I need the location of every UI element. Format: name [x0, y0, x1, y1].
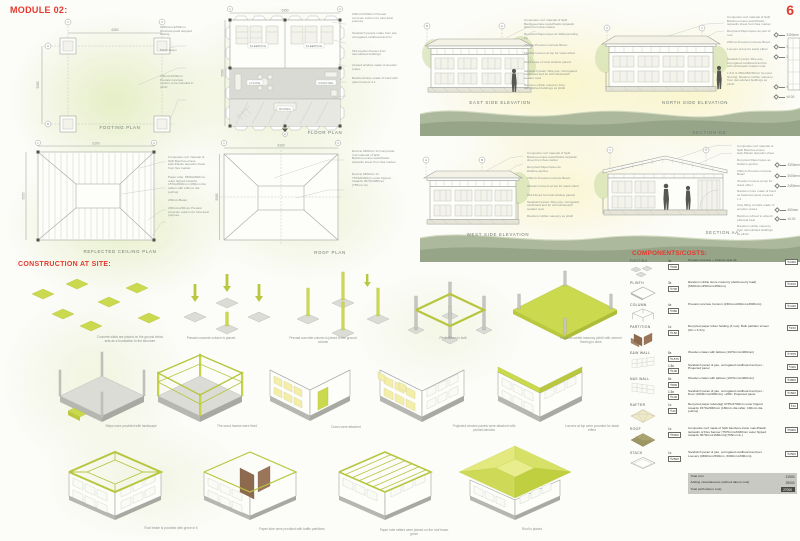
component-footing: FOOTING 4x₹600 Precast concrete + Column… — [630, 259, 798, 278]
section-marker: A — [282, 129, 288, 137]
total-price: ₹1500 — [785, 390, 798, 396]
qty: 1x — [668, 427, 671, 431]
floor-plan-drawing: 6350 5080 — [222, 6, 347, 136]
total-price: ₹4800 — [785, 377, 798, 383]
unit-price: ₹1575 — [668, 356, 681, 362]
rcp-dim-width: 6100 — [92, 142, 99, 146]
qty: 1.5x — [668, 364, 674, 368]
roof-profile — [424, 171, 522, 178]
section-aa-drawing: 1 2 — [598, 140, 733, 232]
step-6-drawing — [52, 352, 152, 424]
column-frame-icon — [630, 308, 656, 322]
presentation-sheet: MODULE 02: 6 6350 5080 1 2 A B 1200mmx12… — [0, 0, 800, 541]
footing-dim-height: 5080 — [36, 81, 40, 88]
step-caption: Paper tube rafters were placed on the ro… — [376, 528, 452, 536]
plinth — [606, 87, 716, 92]
foundation-pads — [32, 279, 160, 331]
callout-text: Louvers at top for stack effect — [727, 48, 773, 52]
level-marker: ±0.00 — [775, 217, 795, 221]
step-3-drawing — [288, 272, 398, 336]
step-caption: Louvers at top were provided for stack e… — [562, 424, 622, 432]
rcp-callouts: Composite roof material of Split Bamboo+… — [168, 156, 210, 221]
unit-price: ₹360 — [668, 308, 679, 314]
unit-price: ₹150 — [668, 330, 679, 336]
step-caption: Roof is placed — [512, 527, 552, 531]
svg-text:SLEEPING: SLEEPING — [250, 44, 266, 48]
total-price: ₹1440 — [785, 303, 798, 309]
total-price: ₹300 — [787, 364, 798, 370]
callout-text: Roof at 3300mm lvl 7570x6330mm outer hip… — [352, 173, 396, 188]
floor-plan-callouts: 230mmX230mm Precast concrete column for … — [352, 13, 398, 88]
step-caption: Doors were attached — [322, 425, 370, 429]
svg-text:SLEEPING: SLEEPING — [306, 44, 322, 48]
callout-text: Sandwich panels made from jute corrugate… — [352, 32, 398, 39]
callout-text: Wooden louvers at top for stack effect — [527, 185, 581, 189]
level-marker: 3300mm — [775, 163, 800, 167]
callout-text: Composite roof material of Split Bamboo+… — [737, 145, 777, 156]
west-elevation-drawing: A B — [422, 152, 524, 234]
level-marker: 2450mm — [775, 184, 800, 188]
callout-text: Old frames or local window panels — [524, 61, 580, 65]
step-13-drawing — [325, 440, 445, 524]
grid-bubble: 2 — [151, 140, 156, 145]
grid-bubble: 1 — [35, 140, 40, 145]
section-aa-callouts: Composite roof material of Split Bamboo+… — [737, 145, 777, 239]
unit-price: ₹100 — [668, 394, 679, 400]
step-caption: Roof beam is provided with grove in it — [140, 526, 202, 530]
callout-text: Paper tube: 5830x2840mm outer hipped tow… — [168, 176, 210, 195]
component-part-label: FOOTING — [630, 259, 668, 263]
north-elevation-label: NORTH SIDE ELEVATION — [640, 100, 750, 105]
grid-bubble: B — [479, 157, 485, 172]
roof-plan-drawing: 6330 5080 1 2 — [218, 140, 346, 252]
step-11-drawing — [55, 440, 175, 524]
grid-bubble: A — [499, 23, 505, 39]
callout-text: Composite roof material of Split Bamboo+… — [168, 156, 210, 171]
component-part-label: ROOF — [630, 427, 668, 431]
grid-bubble: 1 — [65, 19, 71, 25]
component-column: COLUMN 4x₹360 Precast concrete Column (2… — [630, 303, 798, 322]
qty: 5x — [668, 351, 671, 355]
svg-text:COOKING: COOKING — [318, 81, 333, 85]
component-ew-wall: E&W WALL 5x₹1575 Wooden crates with latt… — [630, 351, 798, 374]
plinth — [427, 220, 519, 225]
callout-text: Random rubble masonry as plinth — [527, 215, 581, 219]
component-plinth: PLINTH 3x₹700 Random rubble stone masonr… — [630, 281, 798, 300]
svg-text:A: A — [501, 24, 503, 28]
grid-bubble: B — [45, 121, 51, 127]
qty: 1x — [668, 403, 671, 407]
callout-text: Recycled Paperropes as Rafters+purlins — [527, 166, 581, 173]
roof-section — [603, 156, 727, 173]
unit-price: ₹5000 — [668, 432, 681, 438]
svg-text:DINING: DINING — [279, 107, 291, 111]
callout-text: Sandwich panel: Rice jute, corrugated ca… — [527, 201, 581, 212]
north-elevation-callouts: Composite roof material of Split Bamboo+… — [727, 16, 773, 90]
step-1-drawing — [25, 274, 165, 336]
roof-dim-width: 6330 — [277, 144, 284, 148]
step-2-drawing — [175, 272, 275, 336]
callout-text: Composite roof material of Split Bamboo+… — [727, 16, 773, 27]
east-elevation-drawing: B A — [422, 18, 537, 102]
qty: 1.5x — [668, 390, 674, 394]
component-part-label: COLUMN — [630, 303, 668, 307]
callout-text: Sandwich panel: Rice jute, corrugated ca… — [727, 58, 773, 69]
room-label: SLEEPING — [304, 43, 324, 48]
step-caption: Plinth Beam is built — [430, 336, 476, 340]
callout-text: Wooden louvers at top for stack effect — [737, 180, 777, 187]
callout-text: Clay filling of walls made of wooden cra… — [737, 204, 777, 211]
level-marker: 3000mm — [775, 174, 800, 178]
north-elevation-drawing: 2 1 — [598, 20, 726, 102]
callout-text: Old wooden frames from demolished buildi… — [352, 50, 398, 57]
callout-text: Recycled Paperropes as part of roof — [727, 30, 773, 37]
component-desc: Composite roof made of Split bamboo+Cane… — [688, 427, 772, 438]
callout-text: Roof at 3300mm lvl Composite roof materi… — [352, 150, 396, 165]
rcp-label: REFLECTED CEILING PLAN — [60, 249, 180, 254]
qty: 4x — [668, 259, 671, 263]
room-label: COOKING — [316, 80, 336, 85]
callout-text: 230mm Precast concrete Beam — [524, 44, 580, 48]
total-row: Total (with labour cost) 27000 — [691, 487, 795, 492]
qty: 1x — [668, 325, 671, 329]
floor-plan-label: FLOOR PLAN — [290, 130, 360, 135]
component-rafter: RAFTER 1x₹40 Recycled paper tubes(kg) 67… — [630, 403, 798, 424]
component-desc: Wooden crates with lattices (1970mmx1900… — [688, 377, 772, 381]
step-5-drawing — [505, 270, 625, 340]
component-part-label: N&S WALL — [630, 377, 668, 381]
room-label: SLEEPING — [248, 43, 268, 48]
footing-plan-callouts: 1200mmx1200mm Concrete pads stepped foot… — [160, 26, 194, 93]
component-desc: Sandwich panel of jute, corrugated cardb… — [688, 451, 772, 458]
step-caption: Precast concrete column is joined to the… — [288, 336, 358, 344]
page-number: 6 — [786, 2, 794, 18]
total-price: ₹150 — [787, 325, 798, 331]
callout-text: Flexible louvers at top for stack effect — [524, 52, 580, 56]
total-label: Total (with labour cost) — [691, 488, 781, 492]
step-7-drawing — [150, 352, 250, 424]
grid-bubble: A — [423, 157, 429, 178]
step-9-drawing — [372, 350, 472, 424]
roof-mat-icon — [630, 432, 656, 448]
level-marker: 450mm — [775, 208, 798, 212]
room-label: DINING — [277, 106, 293, 111]
svg-text:B: B — [481, 158, 483, 162]
callout-text: 1200mmx1200mm Concrete pads stepped foot… — [160, 26, 194, 37]
wall-crate-icon — [630, 356, 656, 370]
grid-bubble: A — [45, 43, 51, 49]
page-title: MODULE 02: — [10, 5, 68, 15]
floor-dim-height: 5080 — [221, 69, 225, 76]
unit-price: ₹700 — [668, 286, 679, 292]
section-aa-label: SECTION AA' — [688, 230, 758, 235]
total-price: ₹2100 — [785, 281, 798, 287]
callout-text: 230mm Precast concrete Beam — [527, 177, 581, 181]
callout-text: Bamboo/Cane made of Card with panel louv… — [352, 77, 398, 84]
step-4-drawing — [402, 270, 502, 340]
total-label: Adding miscellaneous (without labour cos… — [691, 481, 786, 485]
callout-text: 230mm Precast concrete Beam — [737, 170, 777, 177]
component-ns-wall: N&S WALL 6x₹800 Wooden crates with latti… — [630, 377, 798, 400]
step-12-drawing — [190, 440, 310, 524]
west-elevation-label: WEST SIDE ELEVATION — [448, 232, 548, 237]
component-part-label: RAFTER — [630, 403, 668, 407]
section-bb-edge-sliver — [787, 34, 800, 96]
construction-heading: CONSTRUCTION AT SITE: — [18, 261, 111, 268]
component-stack: STACK 1x₹2500 Sandwich panel of jute, co… — [630, 451, 798, 470]
unit-price: ₹40 — [668, 408, 677, 414]
grid-bubble: 2 — [335, 140, 340, 145]
rcp-dim-height: 5050 — [22, 192, 26, 199]
svg-text:B: B — [426, 24, 428, 28]
partition-screen-icon — [630, 330, 656, 348]
component-desc: Sandwich panel of jute, corrugated cardb… — [688, 364, 772, 371]
component-partition: PARTITION 1x₹150 Recycled paper tubes ho… — [630, 325, 798, 348]
svg-text:B: B — [47, 122, 49, 126]
svg-text:A: A — [47, 44, 49, 48]
step-caption: Concrete slabs are placed on the ground … — [96, 335, 164, 343]
roof-profile — [425, 39, 533, 46]
component-part-label: STACK — [630, 451, 668, 455]
callout-text: Old frames for local window panels — [527, 194, 581, 198]
unit-price: ₹100 — [668, 368, 679, 374]
total-value: 21900 — [786, 475, 795, 479]
step-caption: Paper tube were provided with baffle par… — [256, 527, 328, 531]
cost-totals: Total cost 21900 Adding miscellaneous (w… — [688, 473, 797, 494]
step-8-drawing — [262, 350, 357, 424]
rafter-frame-icon — [630, 408, 656, 424]
component-part-label: PARTITION — [630, 325, 668, 329]
callout-text: Composite roof material of Split Bamboo+… — [524, 19, 580, 30]
callout-text: Random rubble masonry from demolished bu… — [524, 84, 580, 91]
step-14-drawing — [450, 440, 580, 526]
grand-total-value: 27000 — [781, 487, 795, 492]
callout-text: pivoted window made of wooden crates — [352, 64, 398, 71]
callout-text: Composite roof material of Split Bamboo+… — [527, 152, 581, 163]
roof-plan-label: ROOF PLAN — [295, 250, 365, 255]
callout-text: Plinth Beam — [160, 49, 194, 53]
component-desc: Recycled paper tubes holding (3 nos); Bu… — [688, 325, 772, 332]
component-desc: Precast concrete + Column upto GL — [688, 259, 772, 263]
svg-text:LIVING: LIVING — [250, 81, 261, 85]
qty: 6x — [668, 377, 671, 381]
roof-profile — [602, 36, 720, 44]
callout-text: Sandwich panel: Rice jute, Corrugated ca… — [524, 70, 580, 81]
step-caption: Steps were provided with landscape — [98, 424, 164, 428]
component-desc: Precast concrete Column (230mmx200mmx300… — [688, 303, 772, 307]
plinth-slab-icon — [630, 286, 656, 300]
qty: 1x — [668, 451, 671, 455]
callout-text: 230mmX230mm Precast concrete column for … — [352, 13, 398, 24]
east-elevation-callouts: Composite roof material of Split Bamboo+… — [524, 19, 580, 94]
east-elevation-label: EAST SIDE ELEVATION — [450, 100, 550, 105]
step-caption: Random rubble masonry plinth with cement… — [560, 336, 622, 344]
callout-text: Recycled Paperropes as Waterproofing ply — [524, 33, 580, 40]
callout-text: Recycled Paperropes as Rafters+purlins — [737, 159, 777, 166]
total-value: 25000 — [786, 481, 795, 485]
svg-text:A: A — [425, 158, 427, 162]
callout-text: Random Core made of Card as backrest pan… — [737, 190, 777, 201]
room-label: LIVING — [247, 80, 263, 85]
step-caption: The wood frames were fixed — [208, 424, 266, 428]
total-price: ₹5000 — [785, 427, 798, 433]
callout-text: 230mm Precast concrete Beam — [727, 41, 773, 45]
unit-price: ₹2500 — [668, 456, 681, 462]
total-row: Adding miscellaneous (without labour cos… — [691, 481, 795, 485]
footing-pads — [60, 38, 170, 132]
callout-text: 230mmX230mm Precast concrete column to b… — [160, 75, 194, 90]
unit-price: ₹600 — [668, 264, 679, 270]
callout-text: 230mmx230mm Precast concrete column for … — [168, 207, 210, 218]
grid-bubble: 1 — [607, 147, 613, 170]
total-price: ₹40 — [789, 403, 798, 409]
callout-text: Bamboo refined to absorb ethereal heat — [737, 215, 777, 222]
footing-dim-width: 6350 — [111, 28, 118, 32]
callout-text: 1:4:8 of 450x450x50mm Cement flooring; R… — [727, 72, 773, 87]
roof-dim-height: 5080 — [215, 193, 219, 200]
wall-crate-icon — [630, 382, 656, 396]
reflected-ceiling-plan-drawing: 6100 5050 1 2 — [22, 140, 167, 252]
total-price: ₹2400 — [785, 259, 798, 265]
callout-text: 230mm Beam — [168, 199, 210, 203]
floor-dim-width: 6350 — [281, 9, 288, 13]
total-price: ₹7875 — [785, 351, 798, 357]
unit-price: ₹800 — [668, 382, 679, 388]
total-row: Total cost 21900 — [691, 475, 795, 479]
component-desc: Wooden crates with lattices (1970mmx1900… — [688, 351, 772, 355]
component-desc: Random rubble stone masonry (debris+lorr… — [688, 281, 772, 288]
components-heading: COMPONENTS/COSTS: — [632, 250, 707, 257]
qty: 4x — [668, 303, 671, 307]
qty: 3x — [668, 281, 671, 285]
footing-pads-icon — [630, 264, 656, 278]
west-elevation-callouts: Composite roof material of Split Bamboo+… — [527, 152, 581, 221]
roof-plan-callouts: Roof at 3300mm lvl Composite roof materi… — [352, 150, 396, 191]
step-10-drawing — [490, 350, 590, 424]
step-caption: Projected window panels were attached wi… — [452, 424, 516, 432]
grid-bubble: 1 — [227, 6, 232, 11]
interior-partition-panel — [698, 180, 720, 210]
step-caption: Precast concrete column is placed — [180, 336, 242, 340]
section-bb-label: SECTION-BB' — [675, 130, 745, 135]
grid-bubble: 1 — [221, 140, 226, 145]
component-part-label: PLINTH — [630, 281, 668, 285]
grid-bubble: 2 — [337, 6, 342, 11]
stack-louver-icon — [630, 456, 656, 470]
footing-plan-label: FOOTING PLAN — [80, 125, 160, 130]
component-part-label: E&W WALL — [630, 351, 668, 355]
component-desc: Sandwich panel of jute, corrugated cardb… — [688, 390, 772, 397]
component-desc: Recycled paper tubes(kg) 6745x3790mm out… — [688, 403, 772, 414]
components-list: FOOTING 4x₹600 Precast concrete + Column… — [630, 259, 798, 494]
svg-text:A: A — [284, 132, 286, 136]
total-label: Total cost — [691, 475, 786, 479]
total-price: ₹2500 — [785, 451, 798, 457]
component-roof: ROOF 1x₹5000 Composite roof made of Spli… — [630, 427, 798, 448]
